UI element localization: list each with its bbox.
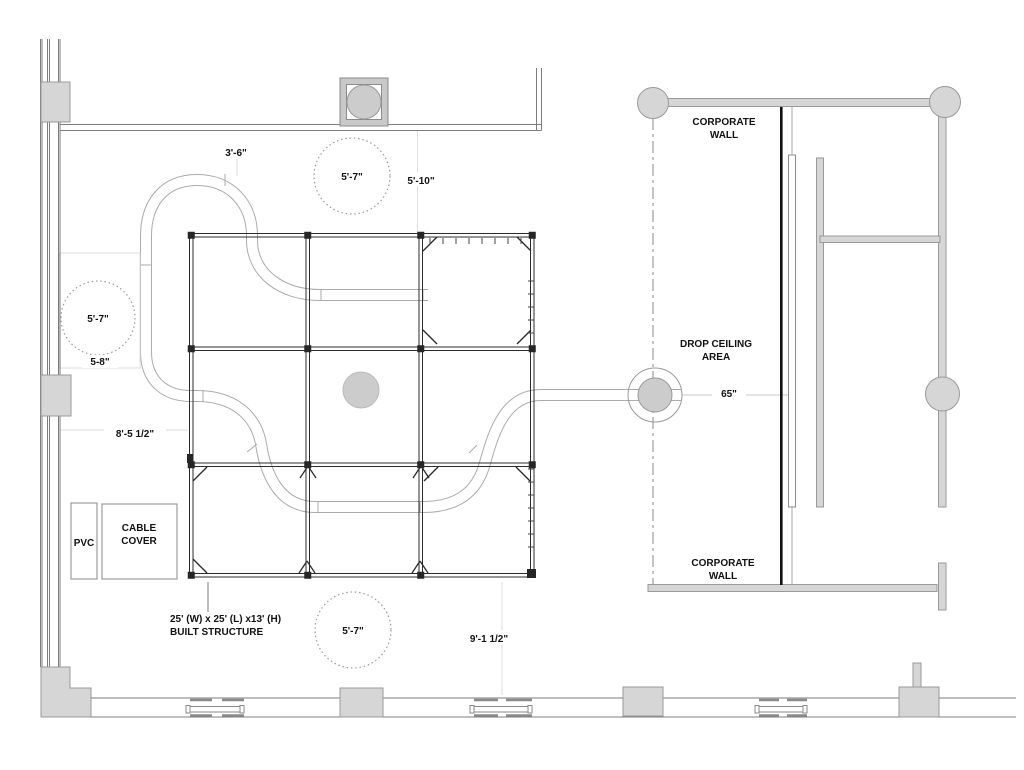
dimension-lines [59, 131, 788, 695]
wall-column [41, 375, 71, 416]
dim-label-9-1-half: 9'-1 1/2" [470, 634, 509, 645]
structure-center-column [343, 372, 379, 408]
dim-label-5-10: 5'-10" [407, 176, 434, 187]
wall-end-cap [939, 563, 947, 610]
cable-cover-label-line2: COVER [121, 536, 157, 547]
built-structure-label-line1: 25' (W) x 25' (L) x13' (H) [170, 614, 281, 625]
wall-door-detail [755, 700, 807, 716]
wall-column [623, 687, 663, 716]
floor-plan: 3'-6" 5'-7" 5'-10" 5'-7" 5-8" 8'-5 1/2" … [0, 0, 1024, 770]
wall-door-detail [186, 700, 244, 716]
round-column [926, 377, 960, 411]
dim-label-3-6: 3'-6" [225, 148, 247, 159]
drop-ceiling-label-line1: DROP CEILING [680, 339, 752, 350]
wall-column-tab [913, 663, 921, 688]
cable-tube-path [140, 174, 681, 513]
cable-cover-label-line1: CABLE [122, 523, 157, 534]
pvc-label: PVC [74, 538, 95, 549]
left-wall [41, 39, 92, 717]
dim-label-65: 65" [721, 389, 737, 400]
round-column [638, 88, 669, 119]
inner-wall [817, 158, 824, 507]
wall-channel [789, 155, 796, 507]
drop-ceiling-label-line2: AREA [702, 352, 730, 363]
top-wall [60, 68, 542, 131]
floor-plan-drawing: 3'-6" 5'-7" 5'-10" 5'-7" 5-8" 8'-5 1/2" … [0, 0, 1024, 770]
built-structure-label-line2: BUILT STRUCTURE [170, 627, 263, 638]
corner-column [41, 667, 91, 717]
corporate-wall-bottom-label-line2: WALL [709, 571, 737, 582]
wall-column [41, 82, 70, 122]
right-outer-wall [939, 106, 947, 507]
corporate-wall-line [780, 107, 783, 585]
dim-label-5-8: 5-8" [90, 357, 109, 368]
corporate-wall-bottom [648, 585, 937, 592]
wall-column [899, 687, 939, 717]
corporate-wall-bottom-label-line1: CORPORATE [691, 558, 754, 569]
corporate-wall-top [653, 99, 945, 107]
corporate-wall-top-label-line1: CORPORATE [692, 117, 755, 128]
round-column [930, 87, 961, 118]
dim-label-5-7-top: 5'-7" [341, 172, 363, 183]
corporate-wall-top-label-line2: WALL [710, 130, 738, 141]
wall-door-detail [470, 700, 532, 716]
boxed-column [340, 78, 388, 126]
wall-column [340, 688, 383, 717]
dim-label-5-7-bottom: 5'-7" [342, 626, 364, 637]
bottom-wall [91, 663, 1016, 717]
wall-connector [820, 236, 940, 243]
dim-label-8-5-half: 8'-5 1/2" [116, 429, 155, 440]
dim-label-5-7-left: 5'-7" [87, 314, 109, 325]
